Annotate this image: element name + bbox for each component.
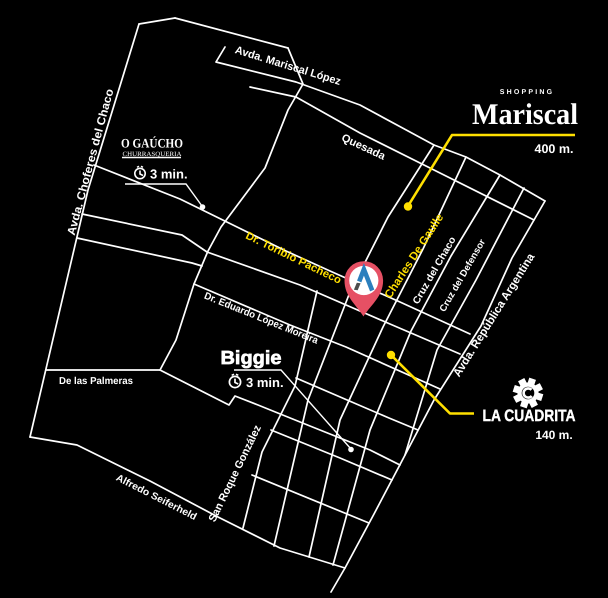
svg-text:SHOPPING: SHOPPING bbox=[500, 89, 555, 96]
svg-text:LA CUADRITA: LA CUADRITA bbox=[482, 407, 575, 425]
svg-text:3 min.: 3 min. bbox=[150, 167, 188, 182]
svg-text:3 min.: 3 min. bbox=[246, 375, 284, 390]
svg-text:O GAÚCHO: O GAÚCHO bbox=[121, 135, 183, 150]
svg-text:400 m.: 400 m. bbox=[535, 142, 574, 156]
svg-text:CHURRASQUERIA: CHURRASQUERIA bbox=[122, 151, 181, 158]
svg-text:Mariscal: Mariscal bbox=[472, 98, 578, 131]
svg-text:140 m.: 140 m. bbox=[535, 428, 572, 442]
svg-text:De las Palmeras: De las Palmeras bbox=[59, 376, 133, 387]
svg-text:Biggie: Biggie bbox=[220, 348, 281, 369]
